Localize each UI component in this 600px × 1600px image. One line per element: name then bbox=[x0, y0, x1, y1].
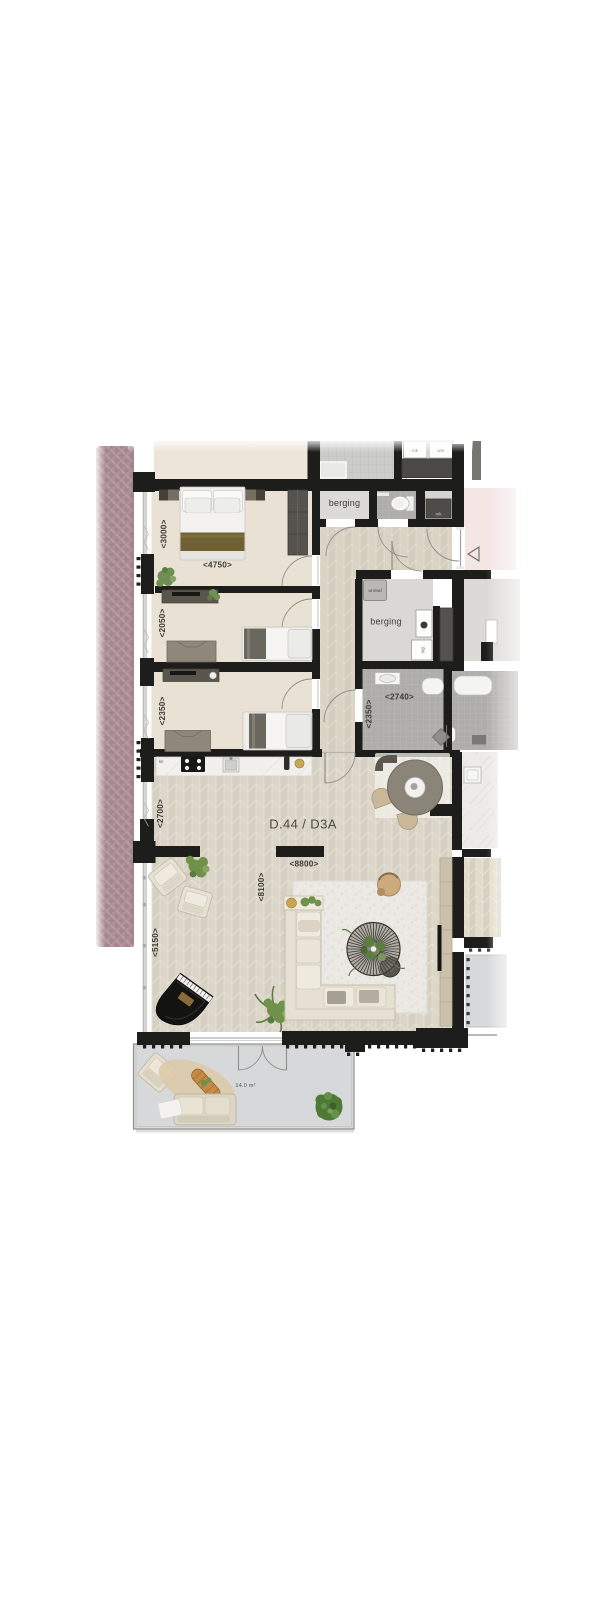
svg-text:wm/wd: wm/wd bbox=[368, 588, 382, 593]
svg-text:14.0 m²: 14.0 m² bbox=[235, 1083, 255, 1089]
svg-text:<8800>: <8800> bbox=[290, 860, 319, 869]
svg-text:<2700>: <2700> bbox=[156, 799, 165, 828]
svg-text:<2740>: <2740> bbox=[385, 693, 414, 702]
svg-text:<8100>: <8100> bbox=[257, 872, 266, 901]
svg-text:D.44 / D3A: D.44 / D3A bbox=[269, 817, 337, 832]
svg-text:<2050>: <2050> bbox=[158, 608, 167, 637]
svg-text:<2350>: <2350> bbox=[158, 696, 167, 725]
svg-text:berging: berging bbox=[370, 617, 401, 627]
svg-text:<5150>: <5150> bbox=[151, 928, 160, 957]
svg-text:<2350>: <2350> bbox=[365, 699, 374, 728]
svg-text:mk: mk bbox=[436, 512, 443, 517]
svg-text:berging: berging bbox=[329, 498, 360, 508]
svg-text:kk: kk bbox=[159, 759, 164, 764]
svg-text:<4750>: <4750> bbox=[203, 561, 232, 570]
svg-text:<3000>: <3000> bbox=[160, 519, 169, 548]
svg-text:dw: dw bbox=[420, 647, 426, 654]
